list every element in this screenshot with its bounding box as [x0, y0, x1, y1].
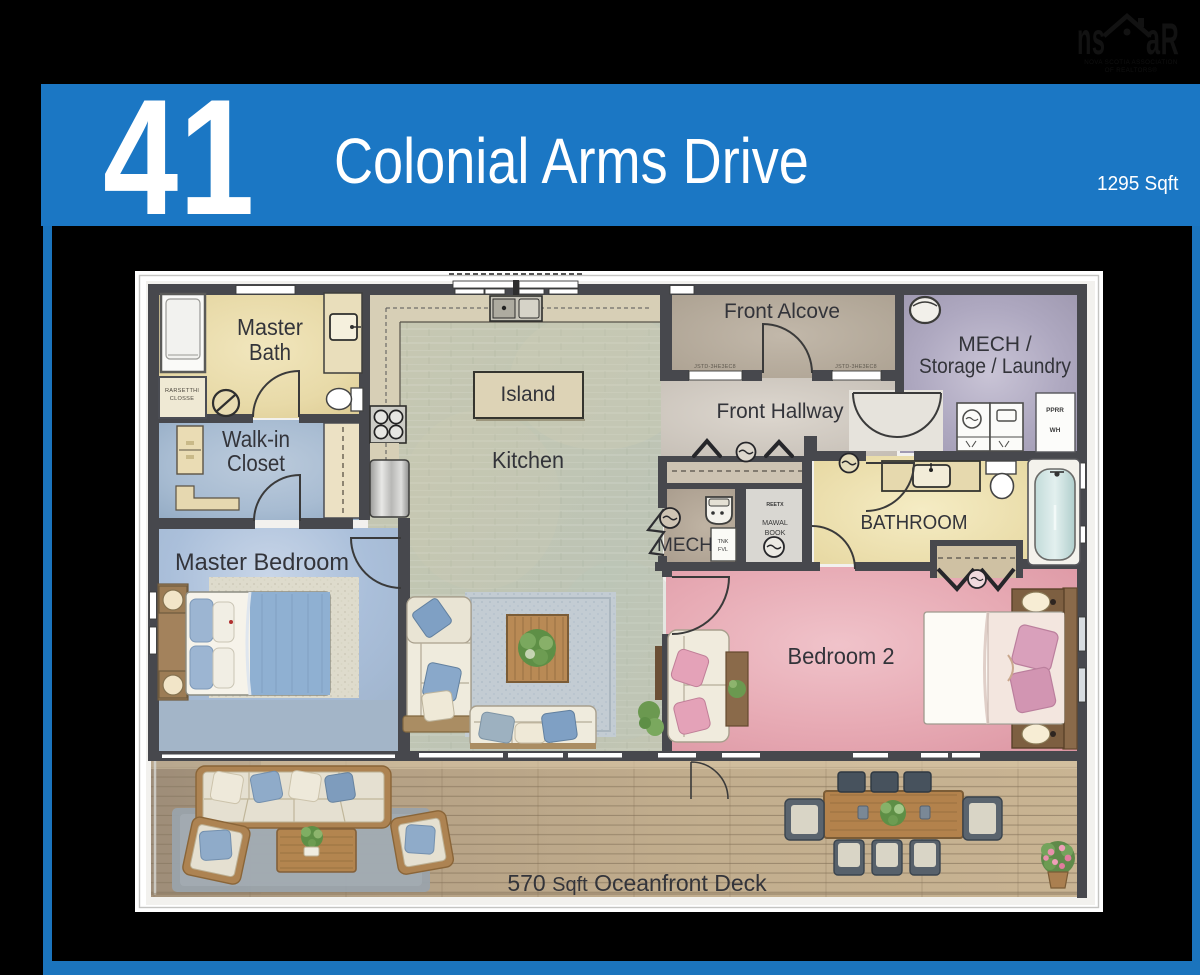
svg-text:Walk-in: Walk-in: [222, 426, 290, 452]
svg-text:Kitchen: Kitchen: [492, 447, 564, 473]
svg-text:BATHROOM: BATHROOM: [861, 512, 968, 534]
svg-text:FVL: FVL: [718, 547, 728, 553]
svg-text:JSTD-3HE3EC8: JSTD-3HE3EC8: [694, 364, 736, 370]
svg-text:570 Sqft Oceanfront Deck: 570 Sqft Oceanfront Deck: [507, 870, 767, 896]
svg-text:JSTD-3HE3EC8: JSTD-3HE3EC8: [835, 364, 877, 370]
svg-text:Master: Master: [237, 314, 303, 340]
svg-text:Storage / Laundry: Storage / Laundry: [919, 355, 1071, 378]
svg-text:aR: aR: [1146, 13, 1179, 63]
svg-text:Bath: Bath: [249, 339, 291, 365]
svg-text:Island: Island: [501, 383, 556, 406]
svg-text:BOOK: BOOK: [765, 528, 786, 537]
svg-text:OF REALTORS®: OF REALTORS®: [1105, 67, 1157, 74]
svg-text:Master Bedroom: Master Bedroom: [175, 549, 349, 576]
svg-text:PPRR: PPRR: [1046, 407, 1064, 414]
svg-text:MECH /: MECH /: [958, 333, 1032, 356]
svg-text:CLOSSE: CLOSSE: [170, 396, 195, 402]
svg-text:RARSETTHl: RARSETTHl: [165, 388, 199, 394]
svg-text:REETX: REETX: [766, 502, 784, 508]
svg-text:Front Hallway: Front Hallway: [717, 400, 844, 423]
svg-text:Closet: Closet: [227, 450, 286, 476]
svg-text:MECH: MECH: [657, 535, 713, 556]
svg-text:TNK: TNK: [718, 539, 729, 545]
svg-text:Front Alcove: Front Alcove: [724, 300, 840, 323]
svg-text:MAWAL: MAWAL: [762, 518, 788, 527]
svg-text:WH: WH: [1050, 427, 1061, 434]
svg-text:Bedroom 2: Bedroom 2: [788, 643, 895, 669]
svg-text:NOVA SCOTIA ASSOCIATION: NOVA SCOTIA ASSOCIATION: [1084, 59, 1178, 66]
svg-text:ns: ns: [1077, 14, 1106, 64]
